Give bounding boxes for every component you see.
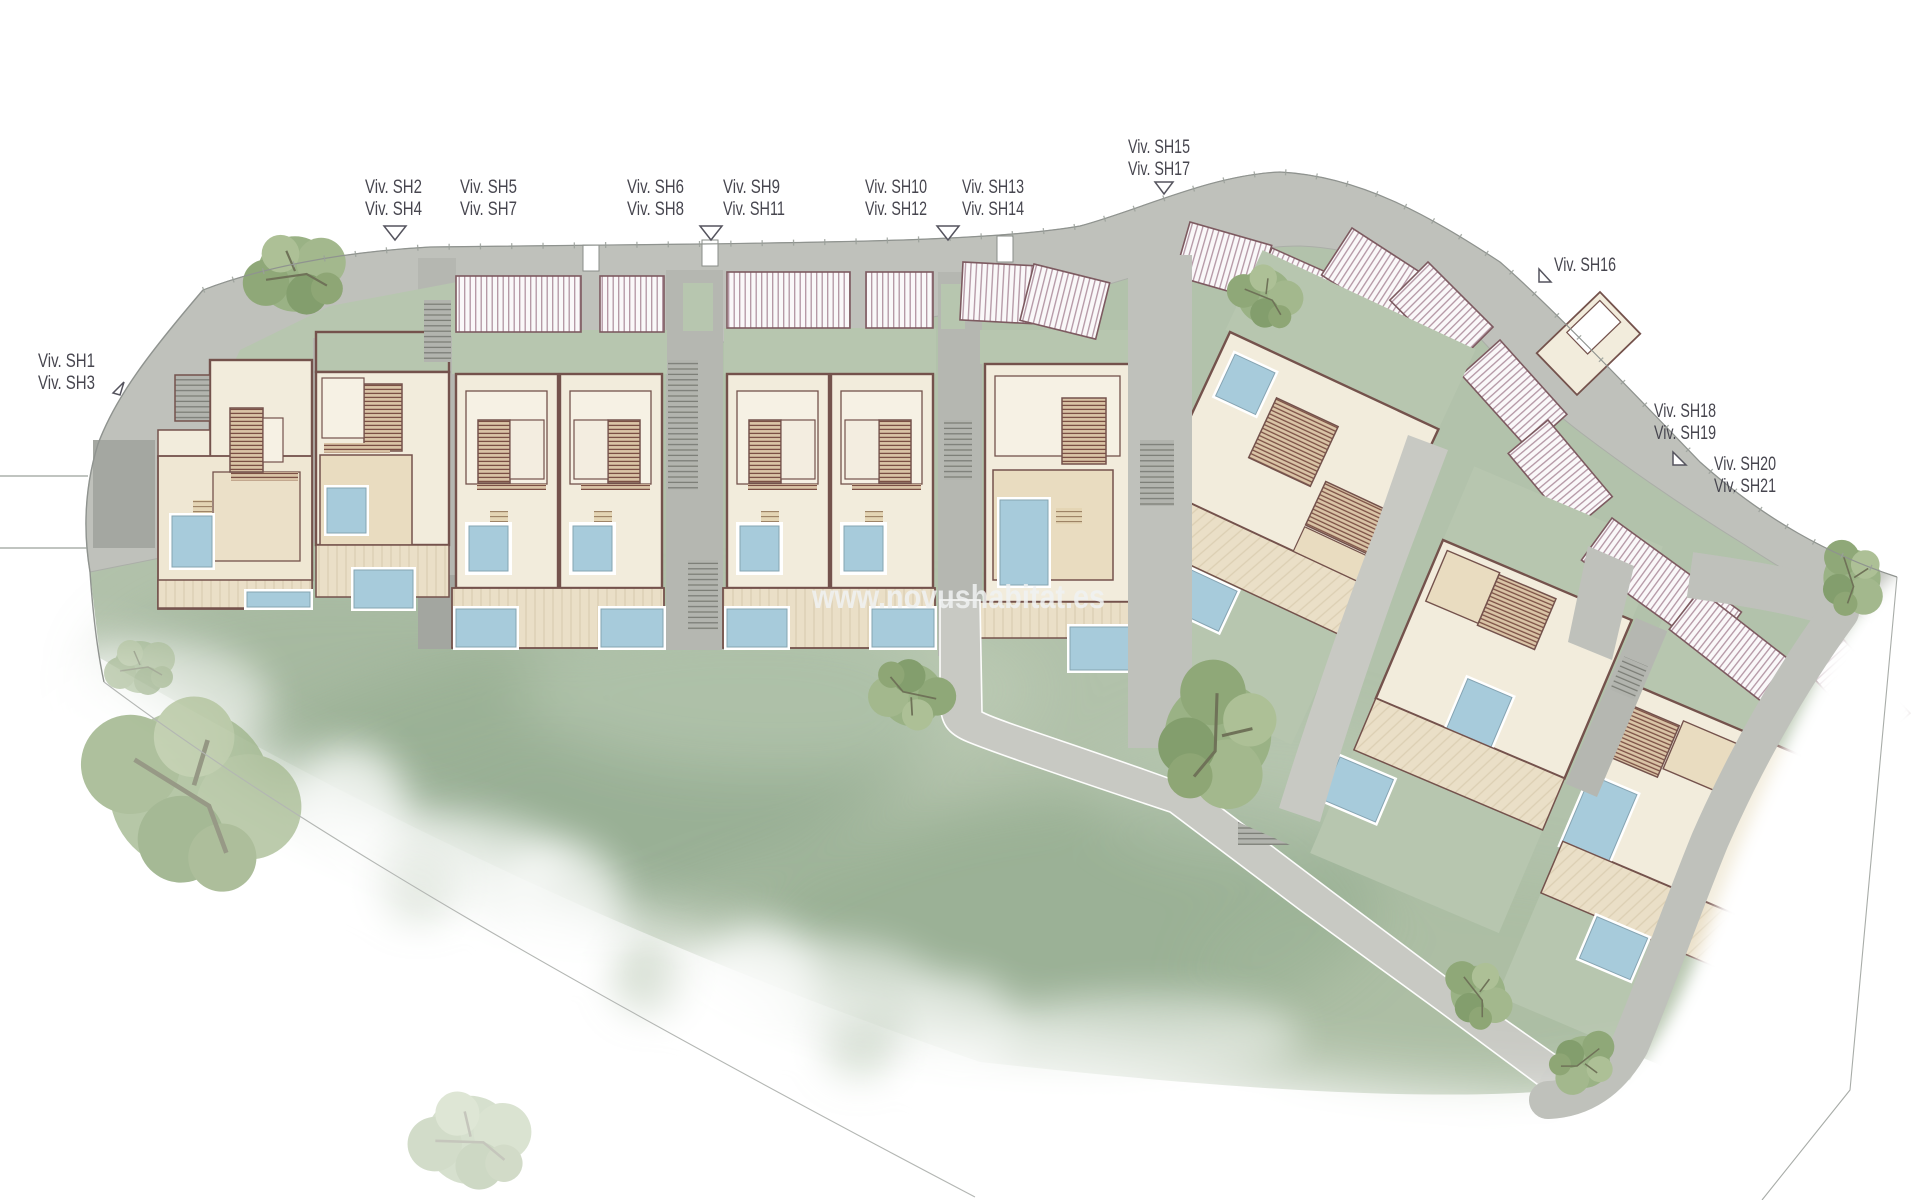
svg-text:Viv. SH11: Viv. SH11 [723, 198, 785, 220]
svg-text:Viv. SH14: Viv. SH14 [962, 198, 1024, 220]
svg-text:Viv. SH10: Viv. SH10 [865, 176, 927, 198]
svg-text:Viv. SH3: Viv. SH3 [38, 372, 95, 394]
svg-text:Viv. SH9: Viv. SH9 [723, 176, 780, 198]
svg-text:Viv. SH17: Viv. SH17 [1128, 158, 1190, 180]
svg-text:Viv. SH2: Viv. SH2 [365, 176, 422, 198]
svg-text:Viv. SH5: Viv. SH5 [460, 176, 517, 198]
svg-text:Viv. SH19: Viv. SH19 [1654, 422, 1716, 444]
svg-text:Viv. SH6: Viv. SH6 [627, 176, 684, 198]
svg-text:Viv. SH20: Viv. SH20 [1714, 453, 1776, 475]
svg-text:Viv. SH12: Viv. SH12 [865, 198, 927, 220]
svg-text:Viv. SH8: Viv. SH8 [627, 198, 684, 220]
svg-text:Viv. SH7: Viv. SH7 [460, 198, 517, 220]
svg-text:Viv. SH21: Viv. SH21 [1714, 475, 1776, 497]
svg-text:Viv. SH1: Viv. SH1 [38, 350, 95, 372]
svg-text:www.novushabitat.es: www.novushabitat.es [811, 578, 1105, 615]
svg-text:Viv. SH4: Viv. SH4 [365, 198, 422, 220]
svg-text:Viv. SH16: Viv. SH16 [1554, 254, 1616, 276]
svg-text:Viv. SH15: Viv. SH15 [1128, 136, 1190, 158]
svg-text:Viv. SH18: Viv. SH18 [1654, 400, 1716, 422]
svg-text:Viv. SH13: Viv. SH13 [962, 176, 1024, 198]
